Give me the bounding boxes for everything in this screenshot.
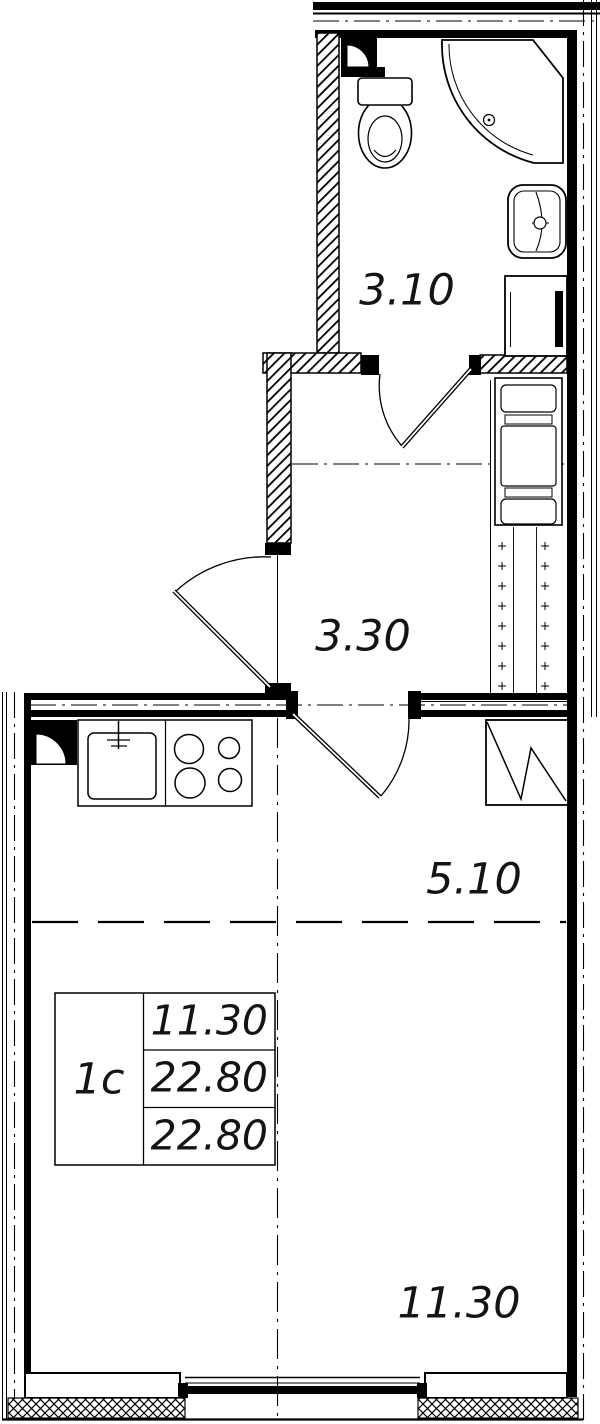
room-label-bathroom: 3.10 xyxy=(359,270,455,313)
fridge-icon xyxy=(486,720,568,805)
room-label-hallway: 3.30 xyxy=(315,616,411,659)
vent-duct-icon xyxy=(341,37,385,77)
info-row-area: 22.80 xyxy=(151,1058,268,1099)
shower-icon xyxy=(442,40,563,163)
floor-plan-drawing xyxy=(0,0,600,1424)
bathroom-sink-icon xyxy=(508,185,566,258)
info-row-total-area: 22.80 xyxy=(151,1116,268,1157)
washing-machine-icon xyxy=(505,276,567,356)
room-label-kitchen: 5.10 xyxy=(426,859,522,902)
toilet-icon xyxy=(358,78,412,168)
info-row-living-area: 11.30 xyxy=(151,1001,268,1042)
wardrobe-icon xyxy=(495,378,562,525)
entrance-door-icon xyxy=(174,557,271,687)
hallway-walls xyxy=(265,353,291,699)
apartment-type-label: 1с xyxy=(74,1059,125,1102)
room-label-living: 11.30 xyxy=(397,1283,520,1326)
room-door-icon xyxy=(293,714,409,797)
kitchen-sink-icon xyxy=(88,721,156,799)
floor-plan: 3.10 3.30 5.10 11.30 1с 11.30 22.80 22.8… xyxy=(0,0,600,1424)
bottom-wall xyxy=(2,1373,583,1420)
vent-duct-icon xyxy=(30,720,77,765)
window-icon xyxy=(178,1378,427,1399)
bathroom-door-icon xyxy=(379,369,471,447)
